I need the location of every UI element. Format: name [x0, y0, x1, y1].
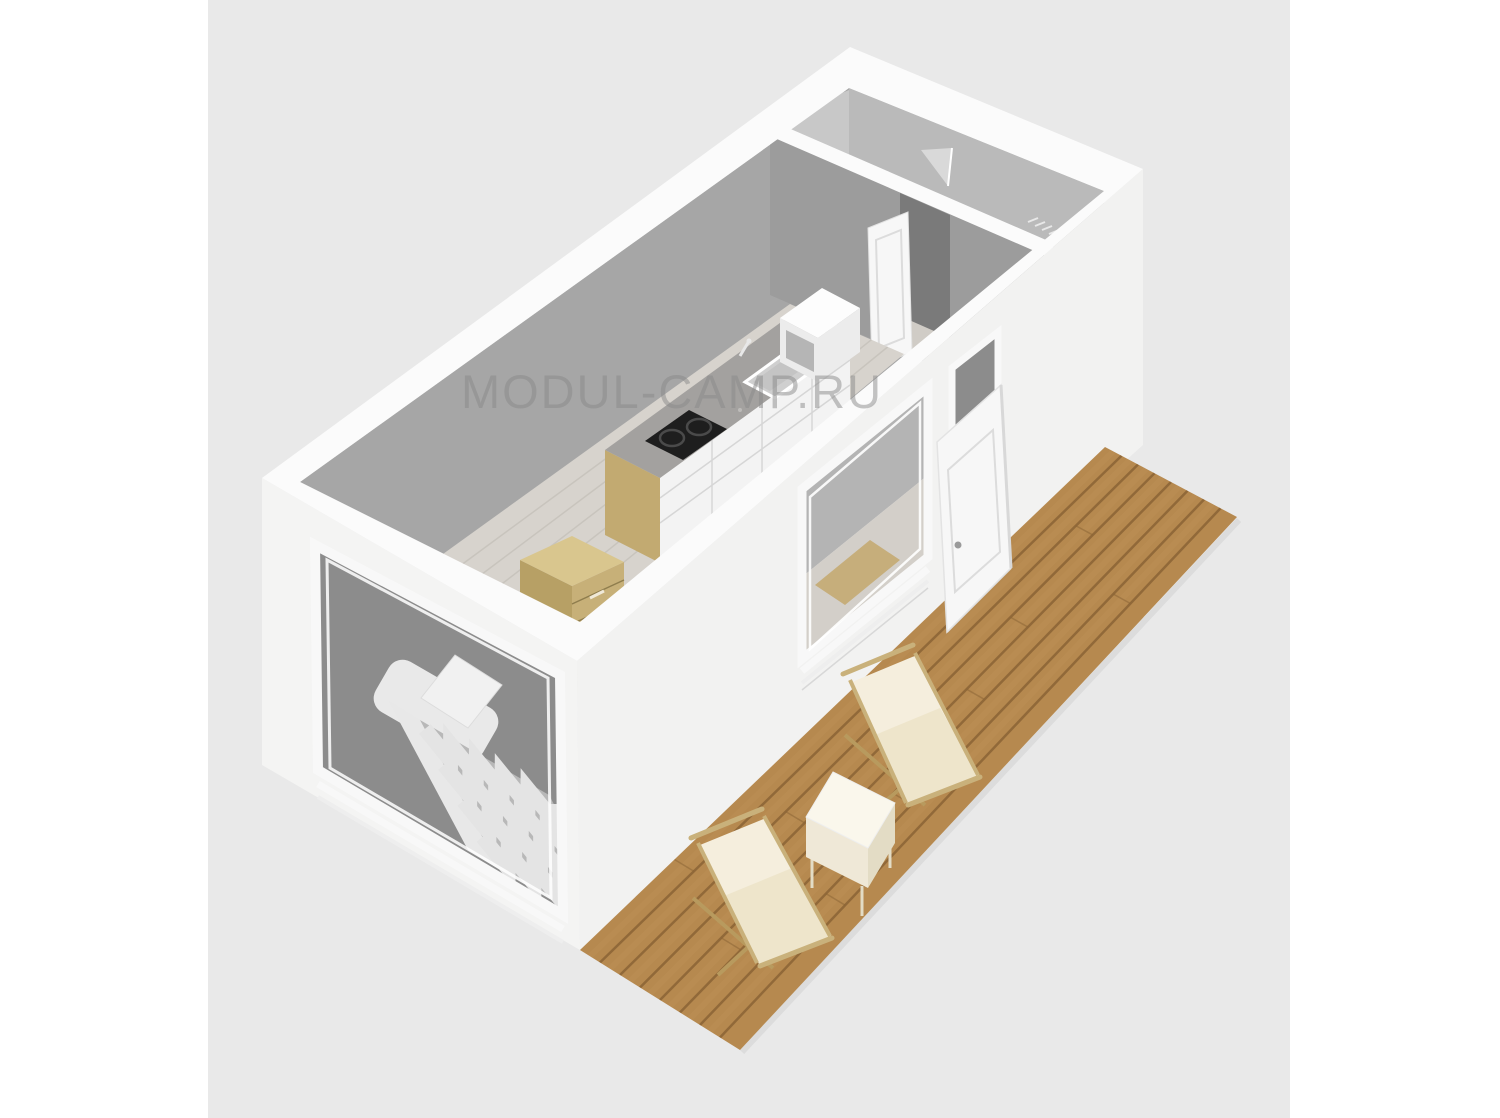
render-scene: MODUL-CAMP.RU — [0, 0, 1500, 1118]
watermark-text: MODUL-CAMP.RU — [461, 365, 883, 418]
floor-plan-3d-render: MODUL-CAMP.RU — [0, 0, 1500, 1118]
door-handle-icon — [955, 542, 962, 549]
